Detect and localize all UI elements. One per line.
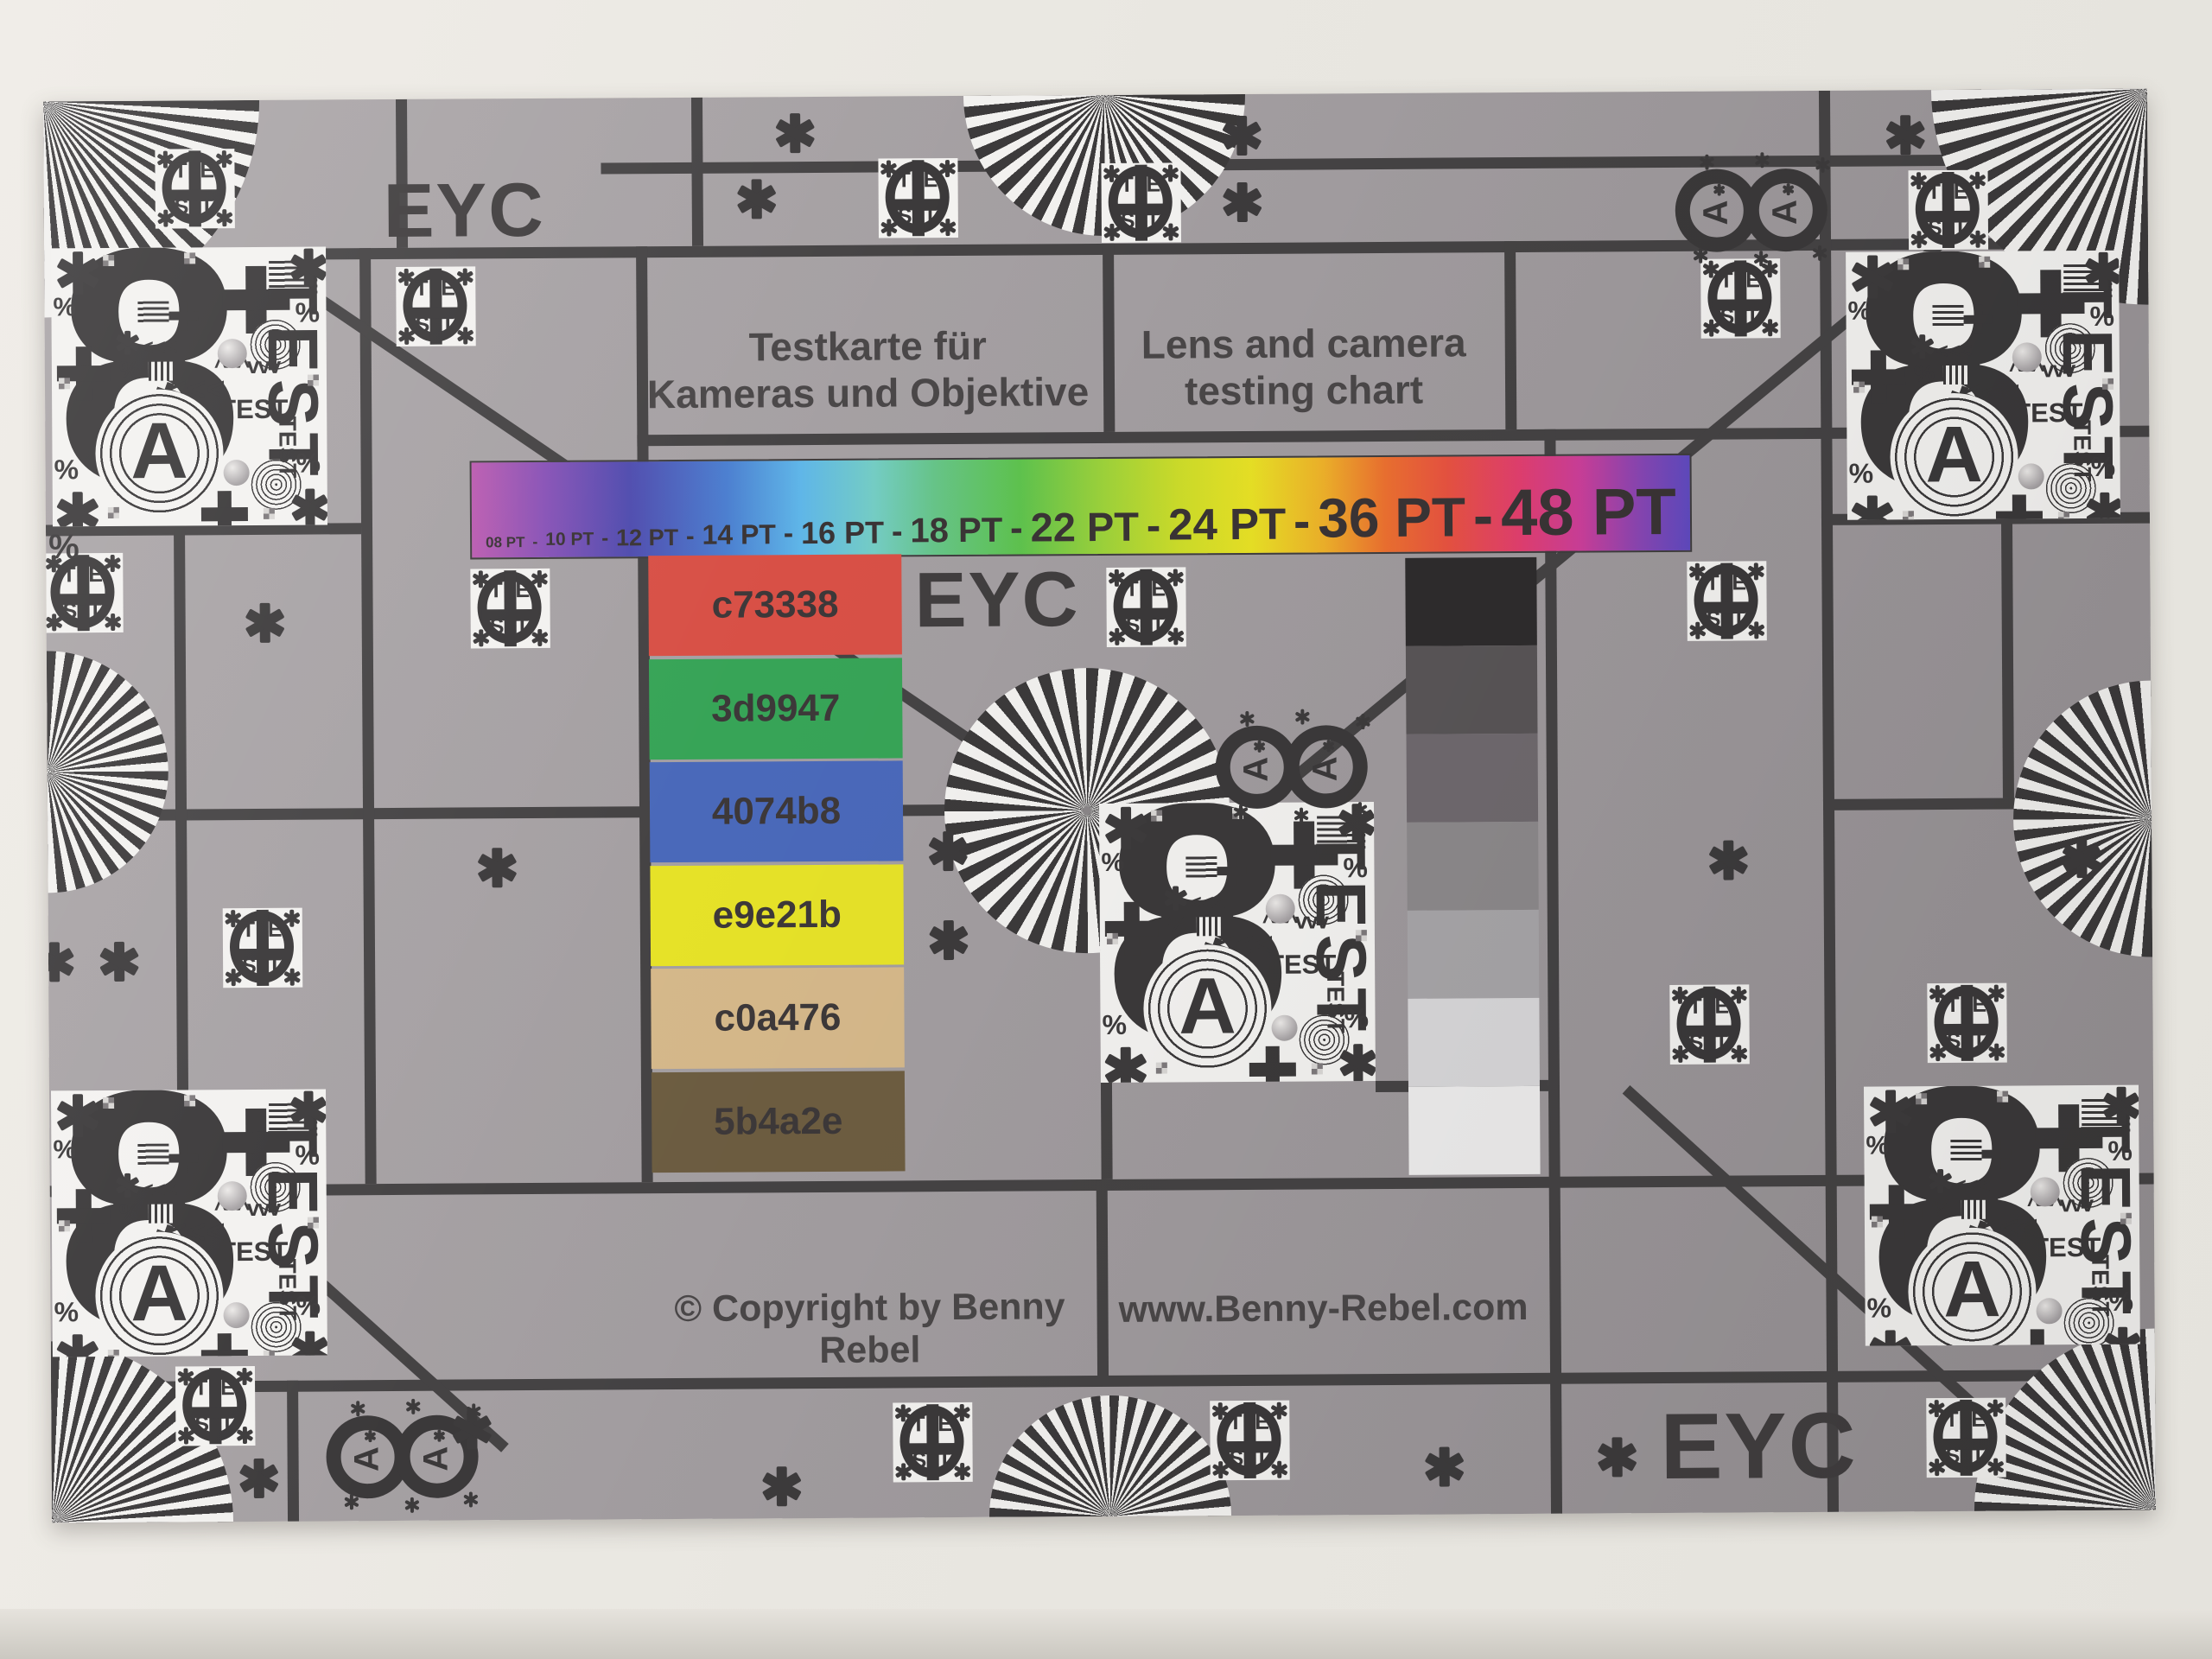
checker-patch xyxy=(2120,1213,2132,1224)
asterisk-icon xyxy=(1869,1090,1912,1133)
roundel-letter: E xyxy=(938,1412,952,1437)
cross-mark xyxy=(57,346,111,400)
roundel-letter: E xyxy=(1147,173,1161,198)
checker-patch xyxy=(1853,382,1865,393)
asterisk-icon xyxy=(1699,155,1714,170)
percent-sign: % xyxy=(2108,1286,2133,1318)
test-collage-block: 8 <<< % T E S T ^^^ vvv TEST <<< TEST % … xyxy=(1864,1085,2140,1346)
checker-patch xyxy=(108,507,119,518)
font-size-separator: - xyxy=(686,525,695,548)
asterisk-icon xyxy=(239,1459,279,1498)
roundel-cross-horizontal xyxy=(1937,1439,1994,1450)
checker-patch xyxy=(1903,511,1914,519)
checker-patch xyxy=(1997,1091,2008,1103)
checker-patch xyxy=(308,375,319,386)
font-size-separator: - xyxy=(784,521,794,548)
roundel-letter: T xyxy=(415,276,428,302)
asterisk-icon xyxy=(1910,334,1935,359)
roundel-letter: E xyxy=(1971,1408,1986,1433)
cross-mark xyxy=(201,1333,248,1357)
arrows-left: <<< xyxy=(142,1180,178,1201)
a-target-letter: A xyxy=(130,1249,188,1339)
asterisk-icon xyxy=(1693,248,1708,264)
eyc-text-center: EYC xyxy=(914,556,1080,645)
roundel-letter: T xyxy=(1928,180,1941,205)
fan-test-pattern xyxy=(988,1395,1231,1517)
asterisk-icon xyxy=(1597,1437,1637,1477)
percent-sign: % xyxy=(1914,362,1935,385)
grayscale-step xyxy=(1407,822,1539,911)
roundel-letter: T xyxy=(194,1376,207,1401)
color-patch: c73338 xyxy=(648,554,902,656)
asterisk-icon xyxy=(457,327,474,344)
roundel-cross-horizontal xyxy=(1221,1441,1278,1452)
ring-letter-a: A xyxy=(1306,756,1345,781)
checker-patch xyxy=(264,508,275,519)
color-patch-label: c73338 xyxy=(712,583,839,627)
table-surface-edge xyxy=(0,1609,2212,1659)
gray-sphere xyxy=(1271,1015,1297,1041)
percent-sign: % xyxy=(1167,913,1188,937)
asterisk-icon xyxy=(762,1466,802,1506)
grayscale-step xyxy=(1408,910,1540,999)
cross-mark xyxy=(201,491,248,526)
checker-patch xyxy=(1916,1093,1927,1104)
asterisk-icon xyxy=(1969,231,1986,248)
roundel-letter: E xyxy=(441,276,455,302)
font-size-separator: - xyxy=(1294,499,1311,543)
asterisk-icon xyxy=(1815,157,1830,173)
asterisk-icon xyxy=(433,1430,445,1442)
roundel-letter: T xyxy=(1706,571,1719,596)
test-roundel: T E S T xyxy=(1106,567,1186,647)
roundel-letter: E xyxy=(1972,993,1986,1018)
title-english-line1: Lens and camera xyxy=(1109,319,1498,368)
cross-mark xyxy=(1217,856,1246,886)
roundel-cross-horizontal xyxy=(1699,601,1756,613)
test-roundel: T E S T xyxy=(1700,258,1781,339)
asterisk-icon xyxy=(477,848,517,887)
percent-sign: % xyxy=(48,528,79,567)
percent-sign: % xyxy=(295,297,320,329)
cross-mark xyxy=(1249,1046,1296,1083)
checker-patch xyxy=(1107,933,1118,944)
ring-letter-a: A xyxy=(1237,757,1276,782)
grid-line-vertical xyxy=(1101,1083,1113,1179)
cross-mark xyxy=(1981,1140,2011,1169)
test-roundel: T E S T xyxy=(175,1366,256,1446)
grid-line-vertical xyxy=(359,248,377,1184)
grid-line-vertical xyxy=(1504,241,1516,429)
cross-mark xyxy=(1963,305,1993,334)
asterisk-icon xyxy=(1323,740,1335,752)
a-target-letter: A xyxy=(1179,961,1236,1052)
ring-letter-a: A xyxy=(1766,200,1805,225)
test-roundel: T E S T xyxy=(1669,984,1750,1065)
hatch-pattern xyxy=(1950,1140,1981,1162)
asterisk-icon xyxy=(283,969,301,986)
asterisk-icon xyxy=(1294,808,1309,823)
roundel-cross-horizontal xyxy=(1681,1025,1738,1036)
roundel-letter: E xyxy=(1714,995,1729,1020)
cross-mark xyxy=(2014,1329,2061,1345)
cross-mark xyxy=(1996,494,2043,519)
checker-patch xyxy=(264,1351,275,1357)
test-collage-block: 8 <<< % T E S T ^^^ vvv TEST <<< TEST % … xyxy=(1099,802,1376,1083)
color-patch: 3d9947 xyxy=(649,658,903,760)
color-patch-label: 3d9947 xyxy=(711,686,841,730)
percent-sign: % xyxy=(54,1296,79,1328)
roundel-letter: T xyxy=(489,578,502,603)
asterisk-icon xyxy=(404,1497,420,1513)
checker-patch xyxy=(1979,257,1990,268)
roundel-letter: E xyxy=(220,1376,235,1401)
asterisk-icon xyxy=(2084,252,2120,290)
percent-sign: % xyxy=(1849,458,1874,490)
checker-patch xyxy=(103,1097,114,1109)
cross-mark xyxy=(168,301,198,330)
roundel-cross-horizontal xyxy=(1712,299,1769,310)
roundel-cross-horizontal xyxy=(482,609,539,620)
percent-sign: % xyxy=(2107,1135,2133,1167)
test-roundel: T E S T xyxy=(155,149,235,229)
cross-mark xyxy=(1870,1185,1923,1238)
roundel-cross-horizontal xyxy=(234,949,291,960)
font-size-label: 14 PT xyxy=(702,522,776,547)
color-patch: e9e21b xyxy=(650,864,904,966)
asterisk-icon xyxy=(2104,1327,2140,1346)
asterisk-icon xyxy=(1271,1461,1288,1478)
asterisk-icon xyxy=(1713,184,1726,196)
grid-line-vertical xyxy=(1544,429,1562,1514)
roundel-letter: T xyxy=(1125,577,1138,602)
grid-line-vertical xyxy=(2001,505,2014,798)
checker-patch xyxy=(1312,1063,1323,1074)
asterisk-icon xyxy=(1851,255,1894,298)
asterisk-icon xyxy=(2102,1087,2140,1125)
fan-test-pattern xyxy=(47,651,169,893)
roundel-letter: E xyxy=(268,918,283,943)
roundel-letter: T xyxy=(897,168,910,193)
asterisk-icon xyxy=(236,1427,253,1444)
font-size-label: 22 PT xyxy=(1030,508,1139,545)
asterisk-icon xyxy=(1223,182,1262,222)
font-size-label: 18 PT xyxy=(910,515,1002,547)
checker-patch xyxy=(308,1217,319,1229)
asterisk-icon xyxy=(1425,1446,1465,1486)
grayscale-step xyxy=(1407,734,1539,823)
test-roundel: T E S T xyxy=(470,569,550,649)
asterisk-icon xyxy=(1254,741,1266,753)
asterisk-icon xyxy=(1239,711,1255,727)
arrows-left: <<< xyxy=(1955,1176,1991,1197)
test-roundel: T E S T xyxy=(1101,162,1181,243)
test-roundel: T E S T xyxy=(223,908,303,988)
asterisk-icon xyxy=(1104,1047,1147,1083)
roundel-cross-horizontal xyxy=(407,307,464,318)
a-target-letter: A xyxy=(1943,1244,2001,1335)
color-patch: c0a476 xyxy=(651,967,905,1069)
grayscale-step xyxy=(1406,645,1538,734)
percent-sign: % xyxy=(119,359,140,382)
font-size-separator: - xyxy=(532,535,537,549)
checker-patch xyxy=(59,378,70,389)
gray-sphere xyxy=(218,1181,247,1211)
title-german-line1: Testkarte für xyxy=(641,321,1095,371)
asterisk-icon xyxy=(289,1090,327,1128)
asterisk-icon xyxy=(1987,1459,2005,1476)
gray-sphere xyxy=(218,339,247,368)
asterisk-icon xyxy=(737,179,777,219)
test-roundel: T E S T xyxy=(893,1402,973,1483)
asterisk-icon xyxy=(1869,1330,1912,1345)
font-size-rainbow-bar: 08 PT-10 PT-12 PT-14 PT-16 PT-18 PT-22 P… xyxy=(472,455,1691,558)
checker-patch xyxy=(108,1350,119,1357)
grid-line-vertical xyxy=(691,98,703,246)
asterisk-icon xyxy=(105,613,122,631)
asterisk-icon xyxy=(405,1399,421,1414)
roundel-letter: T xyxy=(1229,1410,1242,1435)
title-german-line2: Kameras und Objektive xyxy=(641,368,1095,417)
asterisk-icon xyxy=(43,942,74,982)
asterisk-icon xyxy=(99,942,139,982)
percent-sign: % xyxy=(1101,849,1124,878)
arrows-down: vvv xyxy=(1295,909,1328,931)
a-target-letter: A xyxy=(1925,410,1983,500)
ring-letter-a: A xyxy=(416,1446,455,1471)
asterisk-icon xyxy=(452,1409,492,1449)
asterisk-icon xyxy=(116,331,140,355)
percent-sign: % xyxy=(119,1201,140,1224)
asterisk-icon xyxy=(1104,807,1147,850)
roundel-letter: E xyxy=(923,168,938,193)
fan-test-pattern xyxy=(2012,681,2152,958)
percent-sign: % xyxy=(296,1290,321,1322)
roundel-cross-horizontal xyxy=(1939,1024,1996,1035)
asterisk-icon xyxy=(1731,1045,1748,1062)
roundel-cross-horizontal xyxy=(1113,203,1170,214)
percent-sign: % xyxy=(1343,852,1368,884)
asterisk-icon xyxy=(1812,245,1827,261)
arrows-down: vvv xyxy=(2042,358,2075,380)
eyc-text-top-left: EYC xyxy=(383,166,545,255)
font-size-label: 24 PT xyxy=(1168,505,1286,545)
asterisk-icon xyxy=(1708,840,1748,880)
title-german: Testkarte für Kameras und Objektive xyxy=(641,321,1096,418)
checker-patch xyxy=(184,252,195,264)
font-size-label: 16 PT xyxy=(801,518,884,547)
font-size-label: 10 PT xyxy=(545,532,594,549)
arrows-down: vvv xyxy=(247,354,280,377)
asterisk-icon xyxy=(344,1494,359,1510)
asterisk-icon xyxy=(1885,115,1925,155)
gray-sphere xyxy=(2037,1298,2063,1324)
asterisk-icon xyxy=(1167,627,1185,645)
color-patch: 5b4a2e xyxy=(652,1071,906,1173)
font-size-separator: - xyxy=(1473,488,1494,543)
asterisk-icon xyxy=(1748,621,1765,639)
gray-sphere xyxy=(224,460,250,486)
roundel-letter: T xyxy=(912,1412,925,1437)
cross-mark xyxy=(1105,902,1159,956)
color-patch-label: 4074b8 xyxy=(712,790,842,834)
double-ring-8a-icon: A A xyxy=(1675,164,1829,257)
arrows-down: vvv xyxy=(2060,1192,2093,1215)
roundel-letter: E xyxy=(1954,180,1968,205)
roundel-cross-horizontal xyxy=(905,1443,962,1454)
grid-line-vertical xyxy=(174,524,188,1090)
checker-patch xyxy=(103,255,114,266)
roundel-cross-horizontal xyxy=(1920,211,1977,222)
hatch-pattern xyxy=(137,1144,168,1166)
asterisk-icon xyxy=(245,603,285,643)
test-roundel: T E S T xyxy=(1926,1398,2006,1478)
gray-sphere xyxy=(223,1302,249,1328)
roundel-cross-horizontal xyxy=(1118,607,1175,619)
arrows-down: vvv xyxy=(247,1197,280,1219)
roundel-cross-horizontal xyxy=(54,594,111,605)
asterisk-icon xyxy=(1355,714,1370,729)
asterisk-icon xyxy=(1294,709,1310,725)
asterisk-icon xyxy=(1222,116,1262,156)
roundel-letter: E xyxy=(1732,570,1746,595)
font-size-separator: - xyxy=(1010,512,1023,546)
percent-sign: % xyxy=(1932,1197,1953,1220)
percent-sign: % xyxy=(1866,1292,1891,1324)
asterisk-icon xyxy=(1988,1044,2005,1061)
test-roundel: T E S T xyxy=(1927,983,2007,1064)
roundel-letter: T xyxy=(1946,993,1959,1018)
grayscale-step xyxy=(1405,557,1537,646)
asterisk-icon xyxy=(291,488,327,526)
test-roundel: T E S T xyxy=(1210,1401,1290,1481)
roundel-letter: E xyxy=(515,578,530,603)
roundel-cross-horizontal xyxy=(187,1407,244,1418)
asterisk-icon xyxy=(56,251,99,295)
asterisk-icon xyxy=(775,113,815,153)
photographed-test-chart-scene: 8 <<< % T E S T ^^^ vvv TEST <<< TEST % … xyxy=(0,0,2212,1659)
asterisk-icon xyxy=(1753,251,1769,266)
asterisk-icon xyxy=(1164,886,1188,910)
test-roundel: T E S T xyxy=(396,266,476,346)
asterisk-icon xyxy=(1754,152,1770,168)
asterisk-icon xyxy=(1783,183,1795,195)
asterisk-icon xyxy=(928,831,968,871)
roundel-letter: E xyxy=(1151,577,1166,602)
color-patch-label: e9e21b xyxy=(712,893,842,937)
roundel-letter: T xyxy=(1945,1408,1958,1433)
font-size-separator: - xyxy=(601,530,608,549)
percent-sign: % xyxy=(296,447,321,479)
title-english-line2: testing chart xyxy=(1109,365,1498,415)
font-size-separator: - xyxy=(1147,506,1161,544)
roundel-letter: E xyxy=(1745,268,1760,293)
roundel-letter: E xyxy=(200,158,214,183)
roundel-cross-horizontal xyxy=(167,189,224,200)
asterisk-icon xyxy=(56,1334,99,1357)
roundel-letter: T xyxy=(1719,269,1732,294)
asterisk-icon xyxy=(939,219,957,236)
arrows-left: <<< xyxy=(1936,341,1973,362)
gray-sphere xyxy=(2012,342,2042,372)
asterisk-icon xyxy=(1352,802,1368,817)
asterisk-icon xyxy=(2086,493,2120,520)
checker-patch xyxy=(59,1220,70,1231)
asterisk-icon xyxy=(291,1331,327,1357)
color-patch-label: 5b4a2e xyxy=(714,1099,843,1143)
test-collage-block: 8 <<< % T E S T ^^^ vvv TEST <<< TEST % … xyxy=(51,1089,327,1357)
copyright-text: © Copyright by Benny Rebel xyxy=(642,1286,1097,1373)
checker-patch xyxy=(1151,810,1162,822)
percent-sign: % xyxy=(2091,451,2116,483)
roundel-letter: T xyxy=(174,158,187,183)
test-collage-block: 8 <<< % T E S T ^^^ vvv TEST <<< TEST % … xyxy=(1846,251,2120,520)
font-size-label: 08 PT xyxy=(486,536,524,550)
test-collage-block: 8 <<< % T E S T ^^^ vvv TEST <<< TEST % … xyxy=(51,246,327,526)
test-roundel: T E S T xyxy=(1687,561,1767,641)
percent-sign: % xyxy=(1847,297,1871,327)
title-english: Lens and camera testing chart xyxy=(1109,319,1499,415)
asterisk-icon xyxy=(289,248,327,286)
percent-sign: % xyxy=(54,454,79,486)
grid-line-vertical xyxy=(287,1381,299,1522)
test-roundel: T E S T xyxy=(878,158,958,238)
checker-patch xyxy=(1897,258,1909,270)
checker-patch xyxy=(2102,378,2113,390)
asterisk-icon xyxy=(1851,495,1894,519)
percent-sign: % xyxy=(1344,1002,1369,1034)
cross-mark xyxy=(1852,350,1905,404)
percent-sign: % xyxy=(1866,1131,1889,1160)
roundel-letter: E xyxy=(88,563,103,588)
percent-sign: % xyxy=(1102,1009,1127,1041)
asterisk-icon xyxy=(929,920,969,960)
grayscale-step xyxy=(1408,998,1540,1087)
asterisk-icon xyxy=(216,209,233,226)
gray-sphere xyxy=(1266,894,1295,924)
cross-mark xyxy=(57,1189,111,1243)
grayscale-step xyxy=(1408,1086,1541,1175)
arrows-left: <<< xyxy=(142,338,178,359)
color-patch: 4074b8 xyxy=(650,760,904,862)
eyc-text-bottom-right: EYC xyxy=(1660,1391,1858,1500)
percent-sign: % xyxy=(53,1135,76,1165)
gray-sphere xyxy=(2031,1177,2060,1206)
test-roundel: T E S T xyxy=(1909,170,1989,251)
asterisk-icon xyxy=(116,1173,140,1198)
siemens-star-center xyxy=(1083,806,1091,815)
font-size-separator: - xyxy=(892,517,903,546)
hatch-pattern xyxy=(137,302,168,324)
a-target-letter: A xyxy=(130,406,188,497)
asterisk-icon xyxy=(364,1430,376,1442)
asterisk-icon xyxy=(2062,838,2101,878)
test-chart-card: 8 <<< % T E S T ^^^ vvv TEST <<< TEST % … xyxy=(43,89,2156,1523)
percent-sign: % xyxy=(295,1140,320,1172)
checker-patch xyxy=(1872,1216,1883,1227)
asterisk-icon xyxy=(1762,319,1779,336)
asterisk-icon xyxy=(1233,804,1249,820)
cross-mark xyxy=(168,1143,198,1173)
hatch-pattern xyxy=(1932,305,1963,327)
font-size-label: 48 PT xyxy=(1501,483,1676,543)
website-text: www.Benny-Rebel.com xyxy=(1096,1287,1549,1332)
asterisk-icon xyxy=(56,1094,99,1137)
arrows-left: <<< xyxy=(1190,893,1226,913)
grid-line-horizontal xyxy=(48,804,1093,821)
ring-letter-a: A xyxy=(1697,200,1736,226)
roundel-letter: T xyxy=(1688,995,1701,1020)
